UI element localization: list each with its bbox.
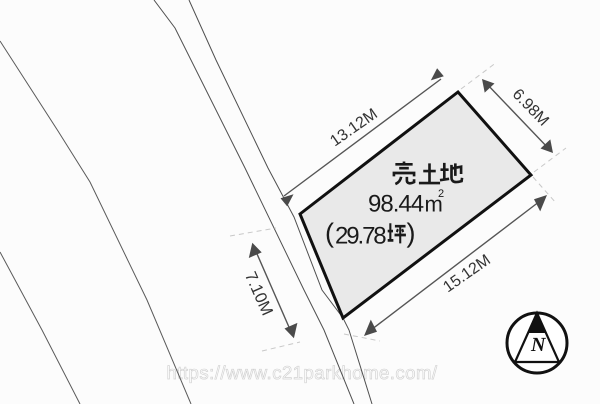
svg-text:98.44: 98.44 bbox=[368, 191, 424, 218]
svg-text:2: 2 bbox=[438, 188, 444, 200]
svg-text:): ) bbox=[407, 218, 416, 248]
svg-text:29.78: 29.78 bbox=[335, 223, 386, 250]
svg-text:(: ( bbox=[325, 218, 334, 248]
svg-text:N: N bbox=[530, 334, 547, 356]
svg-text:https://www.c21parkhome.com/: https://www.c21parkhome.com/ bbox=[166, 362, 437, 383]
